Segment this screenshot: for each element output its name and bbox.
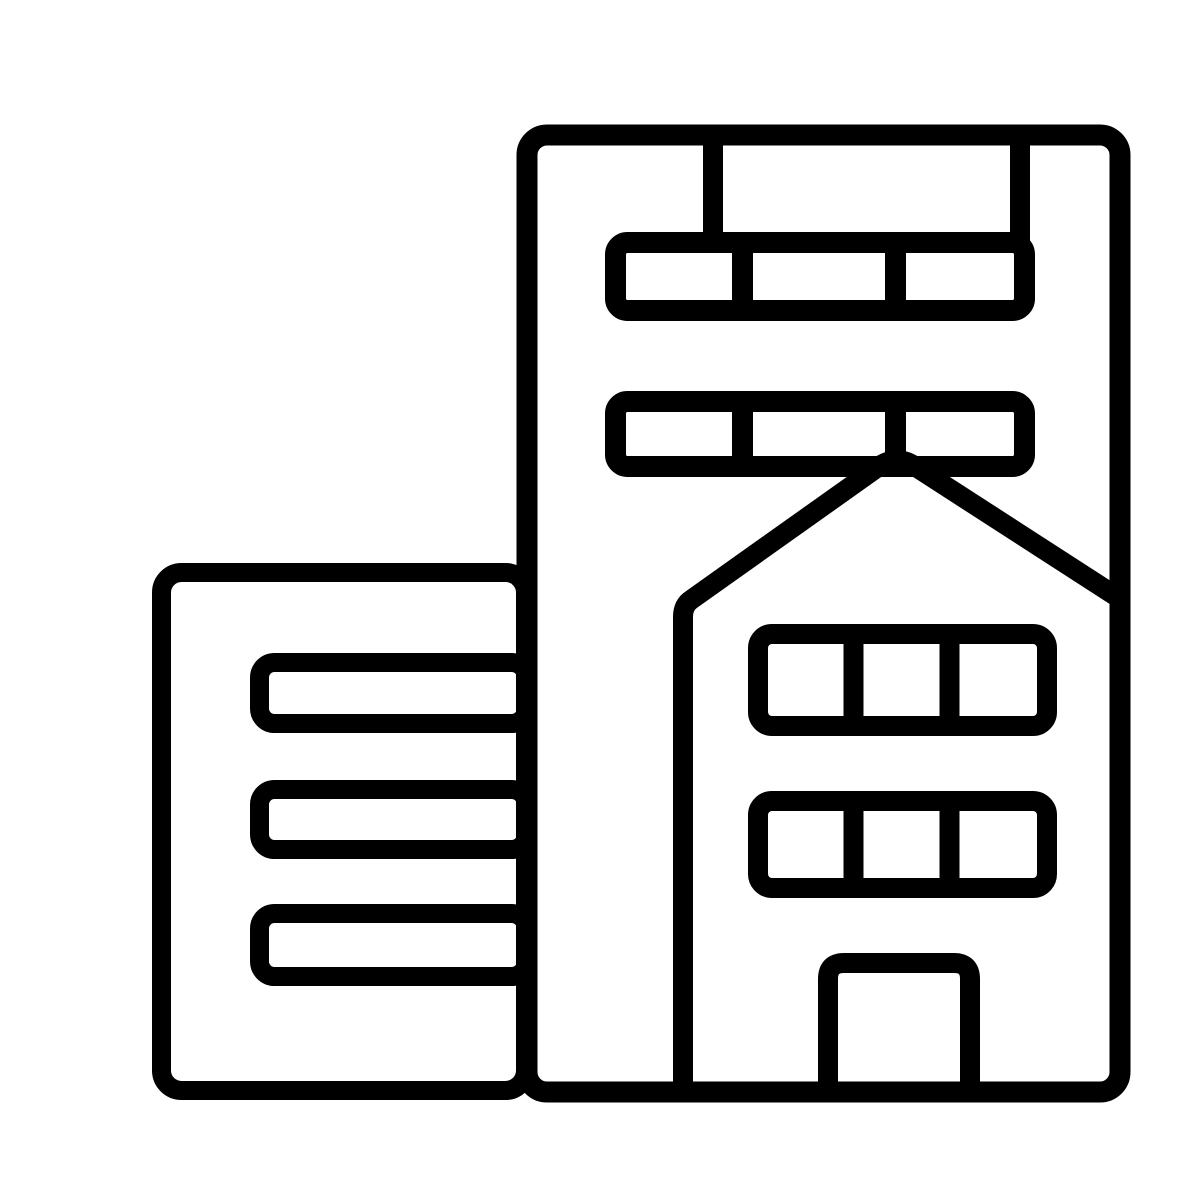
tall-building-window-row-1 — [616, 243, 1025, 311]
side-building-window-bar-3 — [260, 914, 527, 977]
side-building-outline — [162, 573, 526, 1091]
city-buildings-icon — [40, 16, 1200, 1198]
side-building-window-bar-2 — [260, 790, 527, 850]
glyph-strokes — [162, 135, 1121, 1098]
house-window-row-2 — [758, 801, 1047, 888]
house-window-row-1 — [758, 634, 1047, 726]
house-front-wall-and-roof — [683, 460, 1118, 1098]
tall-building-window-row-2 — [616, 402, 1025, 467]
buildings-glyph-canvas — [40, 16, 1200, 1198]
side-building-window-bar-1 — [260, 663, 527, 724]
house-door — [828, 963, 970, 1094]
